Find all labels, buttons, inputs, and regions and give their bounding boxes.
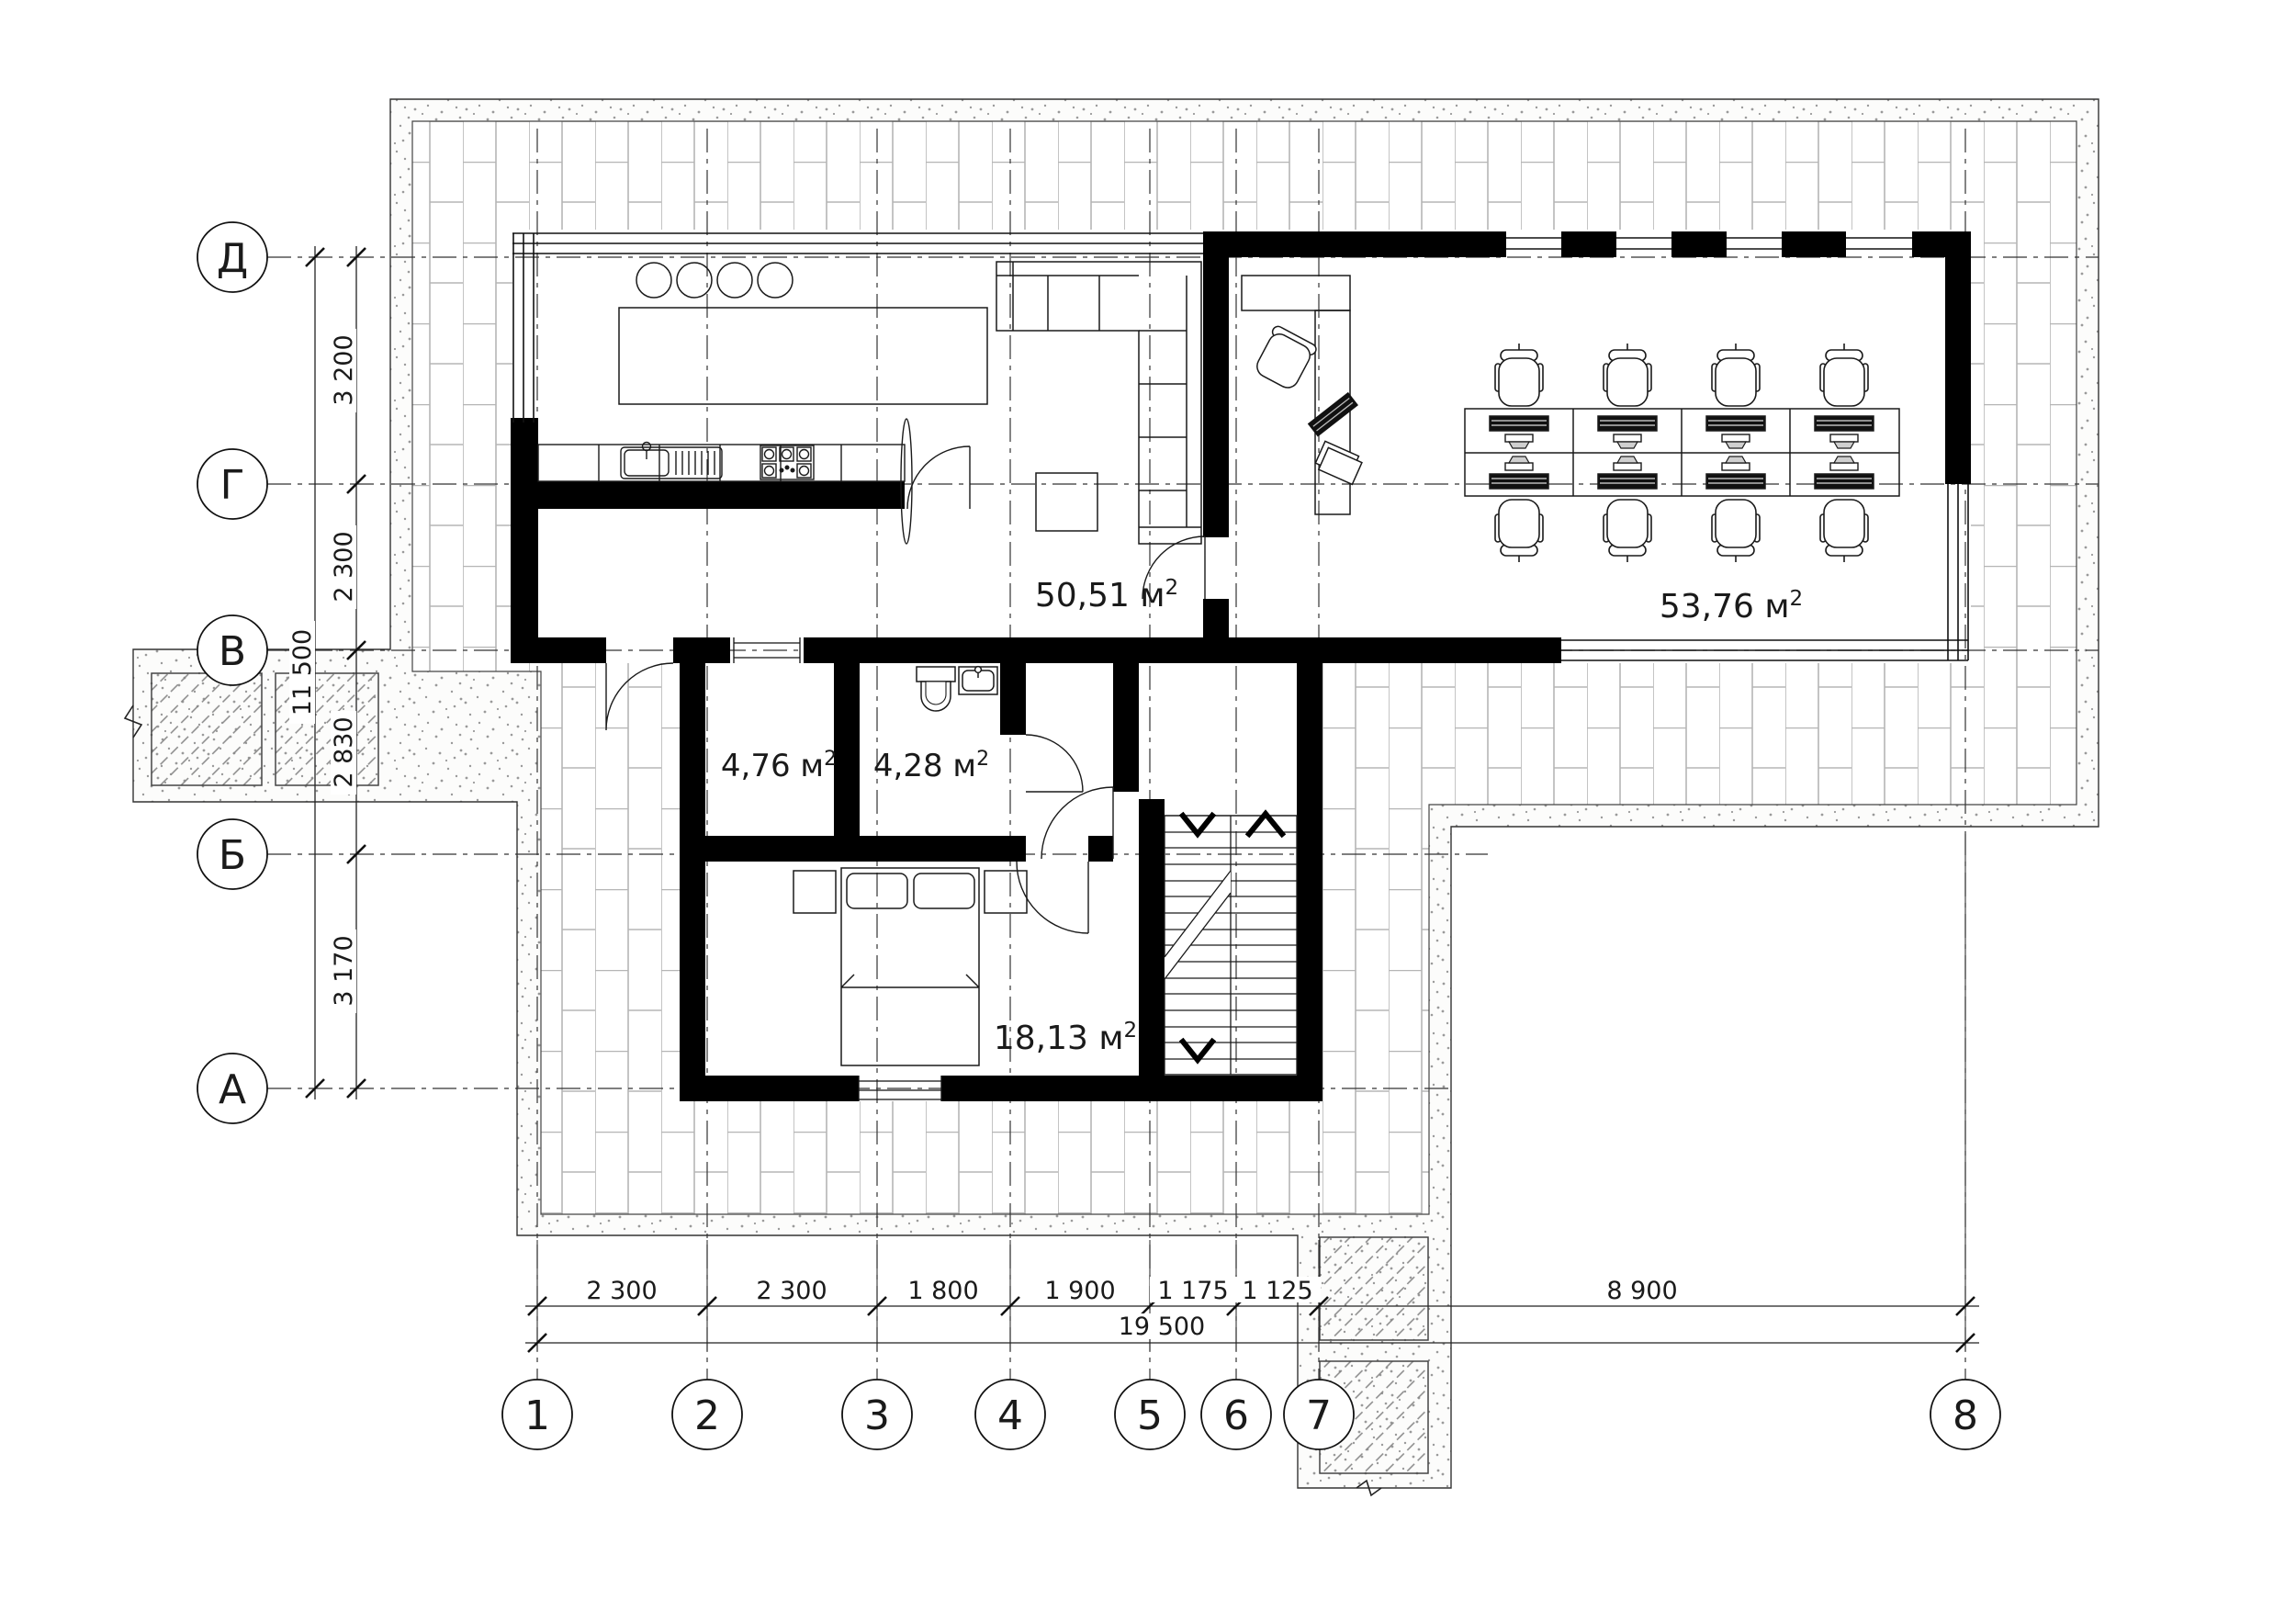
- floor-plan-drawing: 50,51 м2 53,76 м2 4,76 м2 4,28 м2 18,13 …: [0, 0, 2296, 1623]
- axis-col-6: 7: [1306, 1392, 1332, 1439]
- axis-col-2: 3: [864, 1392, 890, 1439]
- label-bathroom-area: 4,28 м2: [873, 748, 989, 784]
- dim-bottom-6: 8 900: [1606, 1277, 1677, 1305]
- dim-bottom-5: 1 125: [1242, 1277, 1312, 1305]
- dim-bottom-3: 1 900: [1044, 1277, 1115, 1305]
- axis-row-2: В: [219, 628, 246, 675]
- porch-hatch-upper: [1320, 1237, 1428, 1340]
- dim-bottom-2: 1 800: [907, 1277, 978, 1305]
- dim-bottom-4: 1 175: [1157, 1277, 1228, 1305]
- axis-col-1: 2: [694, 1392, 720, 1439]
- axis-col-3: 4: [997, 1392, 1023, 1439]
- axis-col-5: 6: [1223, 1392, 1249, 1439]
- dim-bottom-total: 19 500: [1119, 1313, 1205, 1341]
- terrace-hatch-left: [152, 673, 262, 785]
- workstation-desks: [1465, 409, 1899, 496]
- label-living-area: 50,51 м2: [1035, 576, 1178, 614]
- dim-left-total: 11 500: [288, 629, 317, 716]
- axis-col-7: 8: [1953, 1392, 1978, 1439]
- dim-left-2: 2 830: [330, 716, 358, 787]
- dim-left-0: 3 200: [330, 334, 358, 405]
- axis-row-1: Г: [220, 462, 245, 509]
- label-bedroom-area: 18,13 м2: [994, 1019, 1137, 1057]
- wash-basin: [959, 667, 997, 694]
- axis-col-4: 5: [1137, 1392, 1163, 1439]
- label-storage-area: 4,76 м2: [721, 748, 837, 784]
- label-studio-area: 53,76 м2: [1660, 587, 1803, 626]
- dim-bottom-0: 2 300: [586, 1277, 657, 1305]
- floor-plan-page: 50,51 м2 53,76 м2 4,76 м2 4,28 м2 18,13 …: [0, 0, 2296, 1623]
- axis-row-0: Д: [217, 235, 248, 282]
- axis-col-0: 1: [524, 1392, 550, 1439]
- axis-row-4: А: [219, 1066, 246, 1113]
- dim-bottom-1: 2 300: [756, 1277, 827, 1305]
- axis-row-3: Б: [219, 832, 246, 879]
- dim-left-3: 3 170: [330, 935, 358, 1006]
- dim-left-1: 2 300: [330, 531, 358, 602]
